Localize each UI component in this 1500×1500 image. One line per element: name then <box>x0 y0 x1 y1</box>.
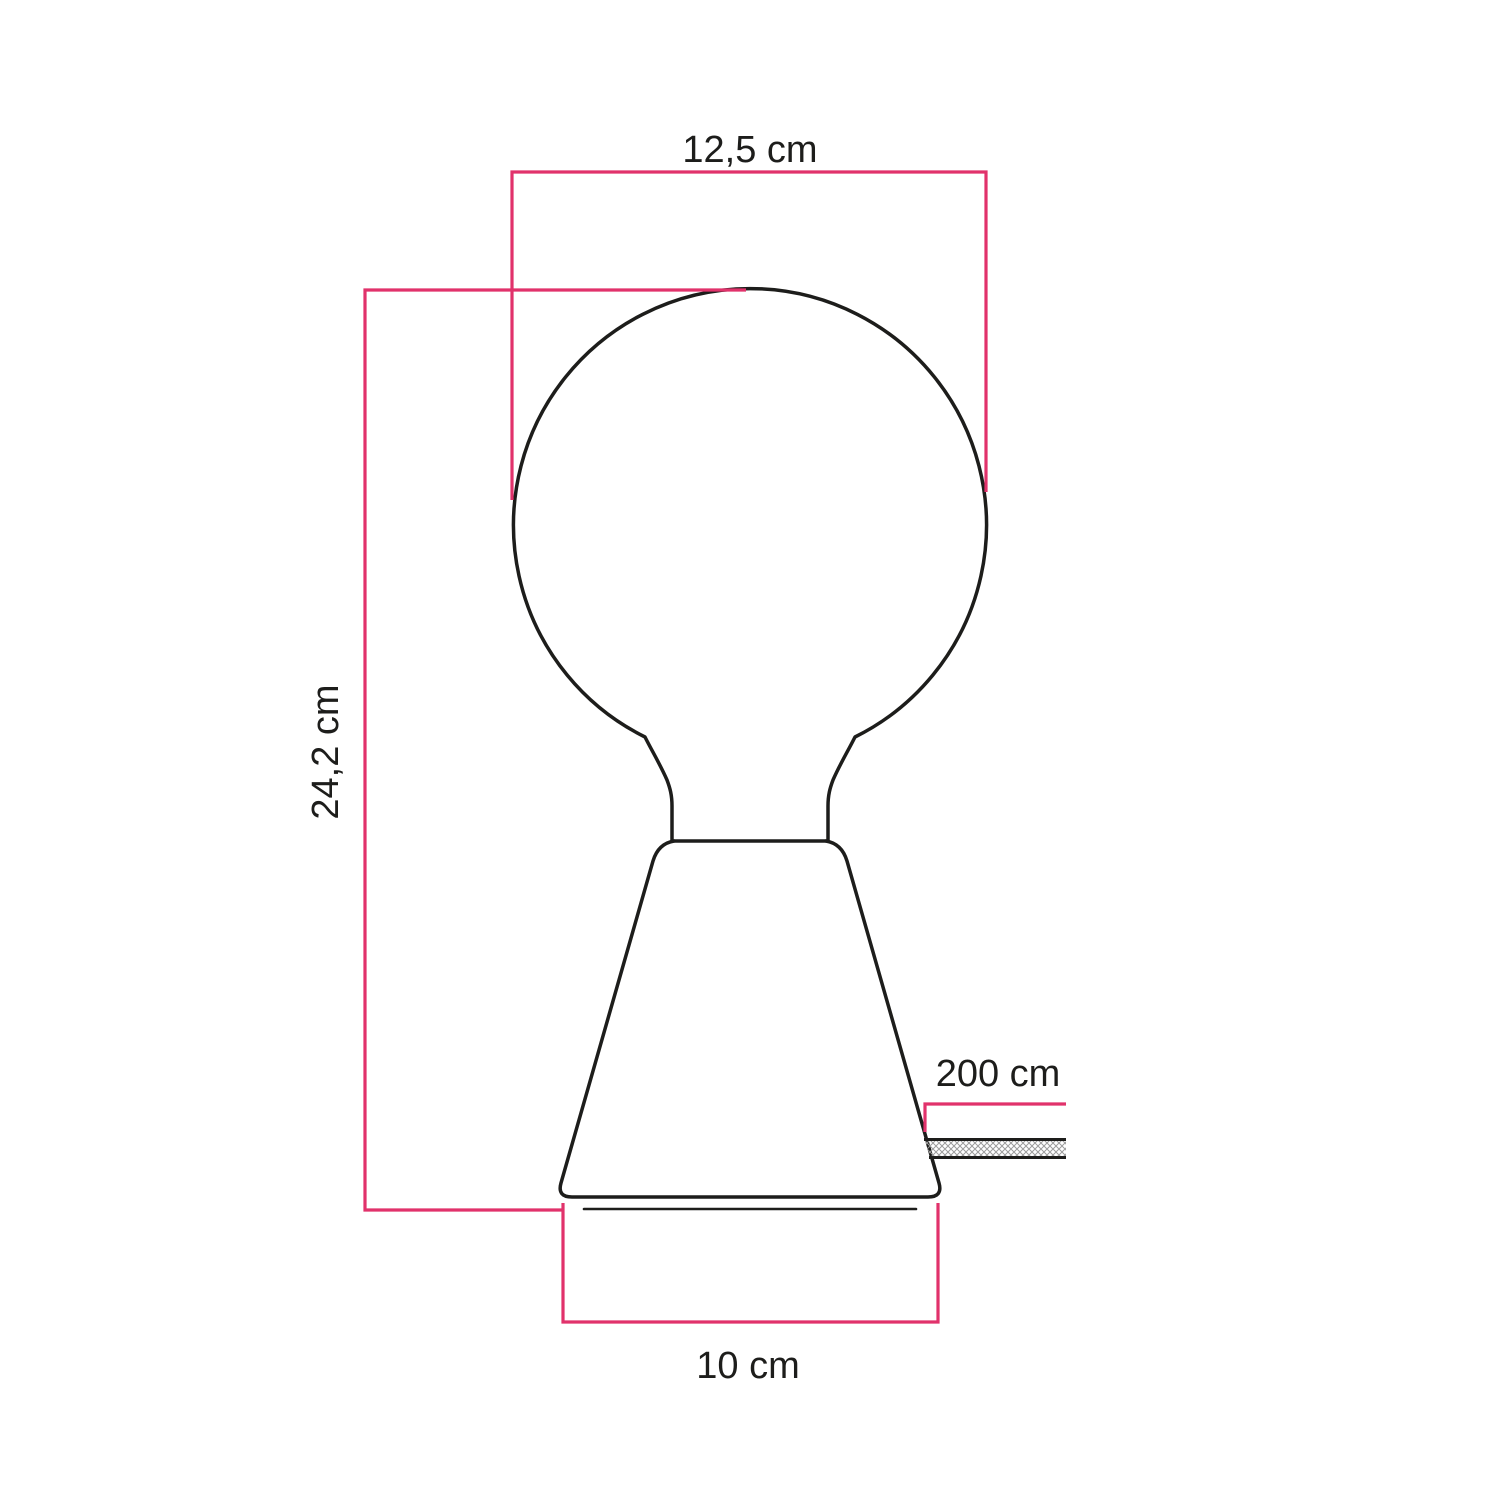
base-width-dimension-line <box>563 1203 938 1322</box>
power-cable <box>924 1140 1066 1158</box>
lamp-base-outline <box>560 841 940 1197</box>
cable-length-label: 200 cm <box>936 1053 1061 1095</box>
cable-braid-texture <box>925 1141 1066 1156</box>
bulb-width-label: 12,5 cm <box>682 129 817 171</box>
bulb-width-dimension-line <box>512 172 986 500</box>
base-width-label: 10 cm <box>696 1345 799 1387</box>
lamp-outline <box>514 289 987 1209</box>
dimension-diagram: 12,5 cm 24,2 cm 200 cm 10 cm <box>0 0 1500 1500</box>
bulb-globe-outline <box>514 289 987 841</box>
height-dimension-line <box>365 290 746 1210</box>
total-height-label: 24,2 cm <box>305 684 347 819</box>
cable-length-dimension-line <box>925 1104 1066 1132</box>
lamp-dimension-drawing: 12,5 cm 24,2 cm 200 cm 10 cm <box>0 0 1500 1500</box>
